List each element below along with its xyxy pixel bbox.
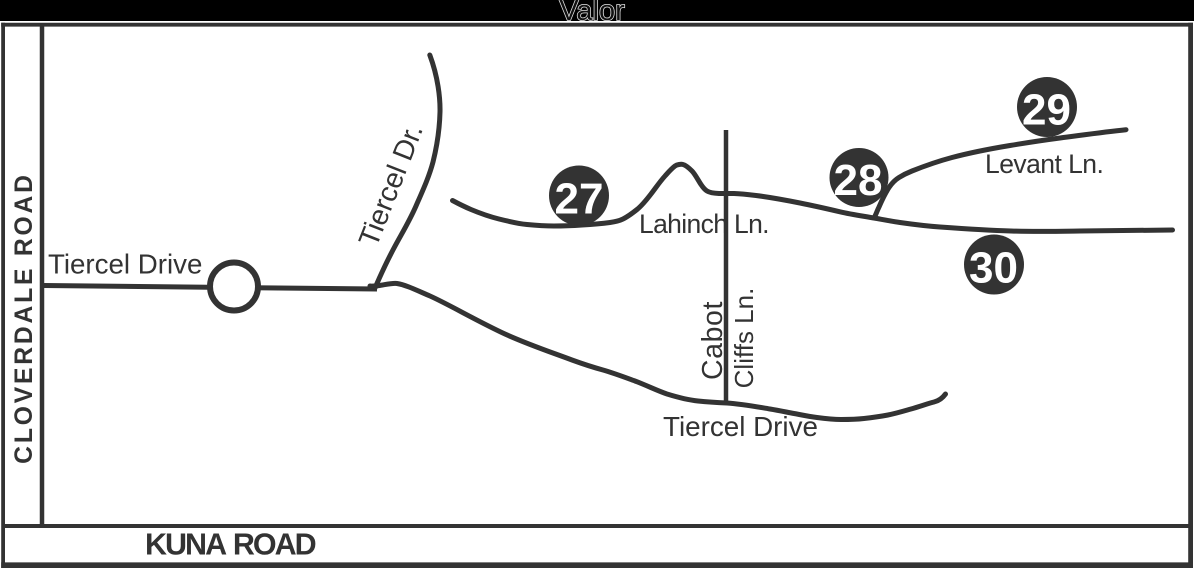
svg-text:27: 27 [555,175,604,224]
svg-text:KUNA ROAD: KUNA ROAD [145,528,316,562]
svg-text:Levant Ln.: Levant Ln. [985,149,1103,179]
svg-text:CLOVERDALE ROAD: CLOVERDALE ROAD [11,172,38,464]
svg-text:Cabot: Cabot [697,301,729,380]
svg-text:Lahinch Ln.: Lahinch Ln. [639,209,769,239]
svg-text:Tiercel Drive: Tiercel Drive [663,411,818,442]
svg-text:Tiercel Drive: Tiercel Drive [48,249,202,280]
svg-text:28: 28 [834,156,883,205]
svg-text:30: 30 [969,244,1018,293]
svg-text:29: 29 [1022,86,1071,135]
svg-text:Cliffs Ln.: Cliffs Ln. [729,288,759,389]
